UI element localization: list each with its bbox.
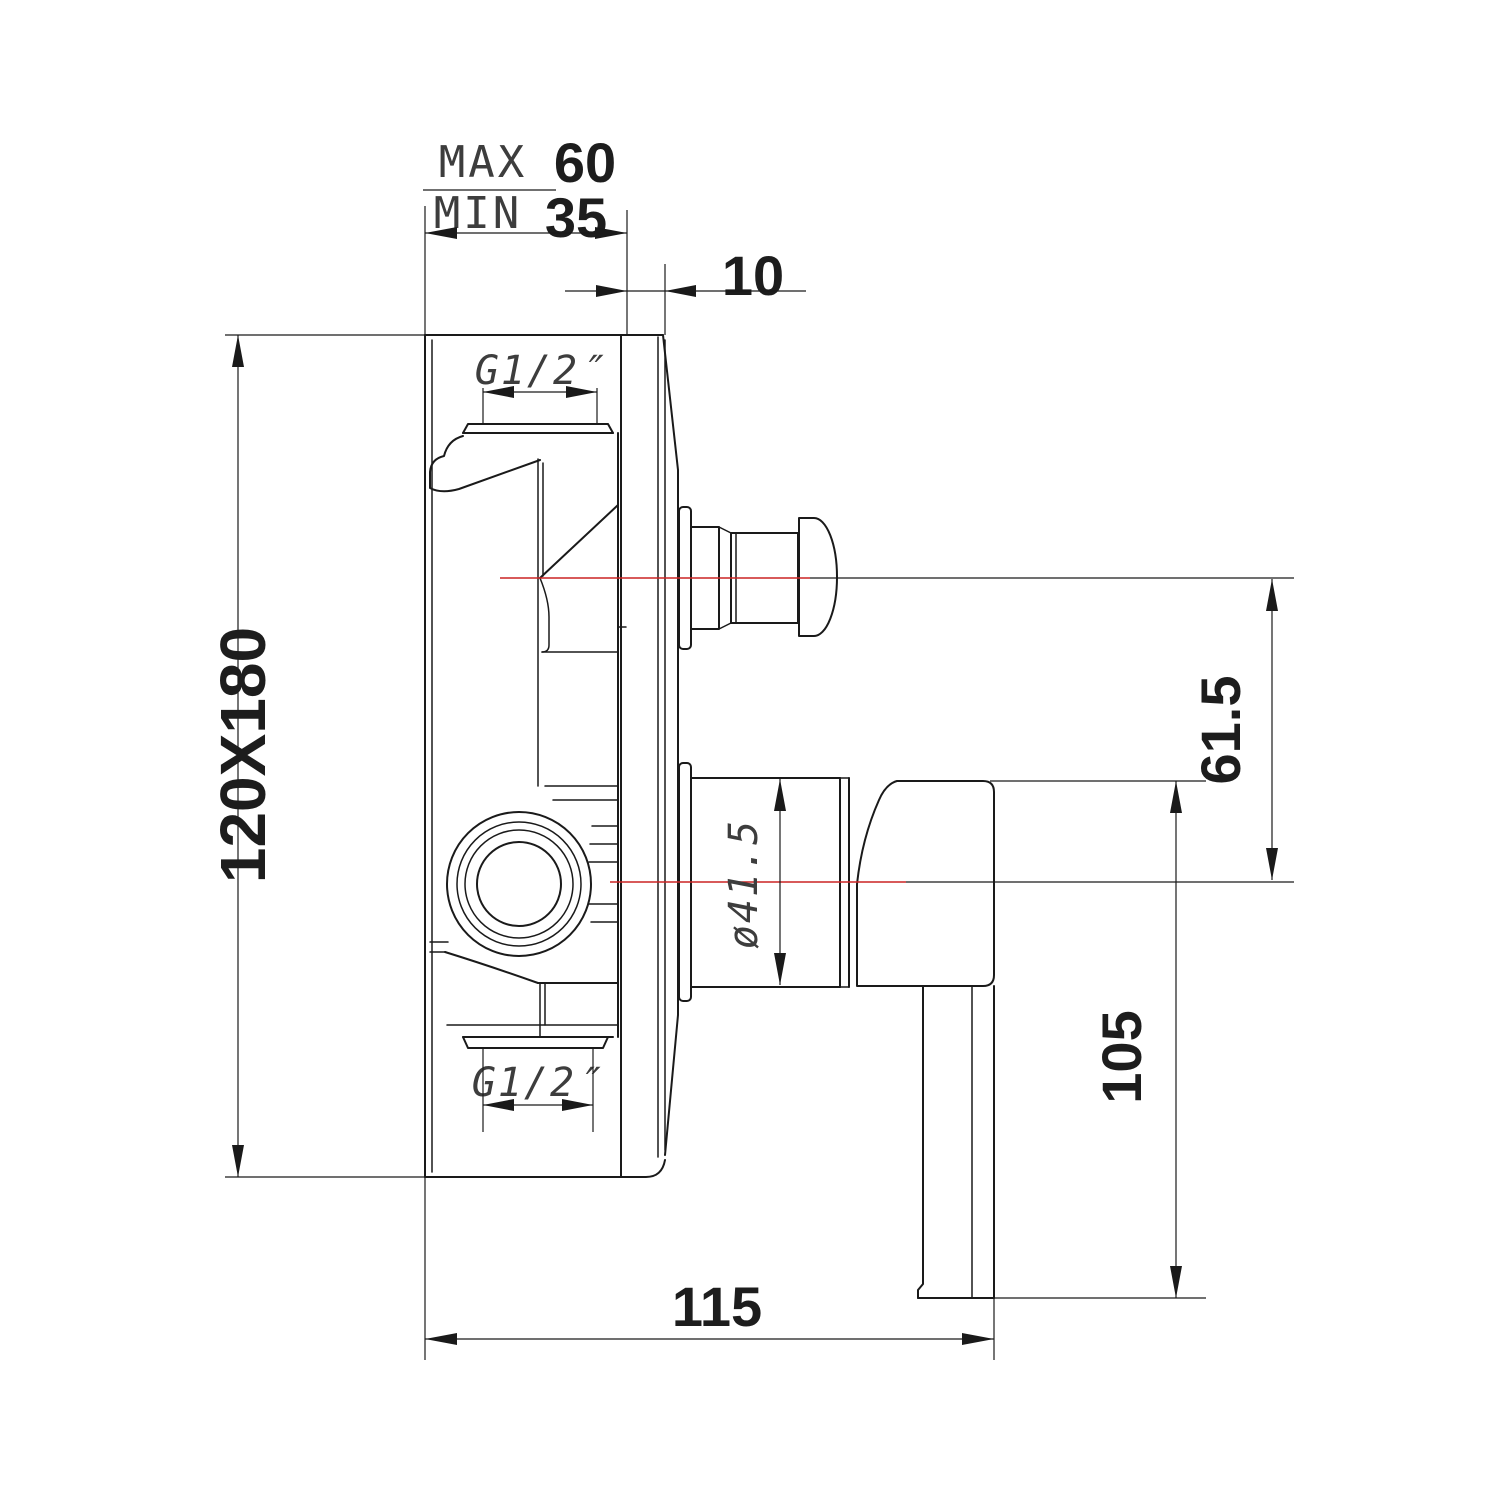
escutcheon-plate (658, 335, 678, 1157)
lever-length-value: 105 (1090, 1010, 1153, 1103)
dim-top-port: G1/2″ (475, 348, 605, 424)
rough-in-box-outline (425, 335, 665, 1177)
diverter-knob-cap (799, 518, 837, 636)
plate-size-value: 120X180 (207, 627, 279, 883)
dim-plate-offset: 10 (565, 244, 806, 335)
dim-diverter-height: 61.5 (1189, 579, 1278, 880)
handle-body (857, 781, 994, 986)
dim-wall-depth: MAX 60 MIN 35 (423, 131, 627, 335)
bottom-port-thread-label: G1/2″ (472, 1060, 602, 1106)
dim-total-depth: 115 (425, 1177, 994, 1360)
valve-body (430, 424, 626, 1048)
top-port-thread-label: G1/2″ (475, 348, 605, 394)
dim-lever-length: 105 (990, 781, 1206, 1298)
plate-offset-value: 10 (722, 244, 784, 307)
top-port-stub (463, 424, 613, 433)
handle-lever (918, 986, 994, 1298)
mixer-valve-drawing: MAX 60 MIN 35 10 120X180 G1/2″ G (0, 0, 1500, 1500)
handle (857, 781, 994, 1298)
sleeve-diameter-value: ø41.5 (721, 819, 767, 949)
total-depth-value: 115 (672, 1275, 762, 1338)
max-label: MAX (439, 137, 527, 188)
min-value: 35 (545, 186, 607, 249)
dim-plate-size: 120X180 (207, 335, 425, 1177)
cartridge-circles (447, 812, 591, 956)
diverter-height-value: 61.5 (1189, 676, 1252, 785)
dim-bottom-port: G1/2″ (472, 1048, 602, 1132)
technical-drawing-canvas: MAX 60 MIN 35 10 120X180 G1/2″ G (0, 0, 1500, 1500)
max-value: 60 (554, 131, 616, 194)
